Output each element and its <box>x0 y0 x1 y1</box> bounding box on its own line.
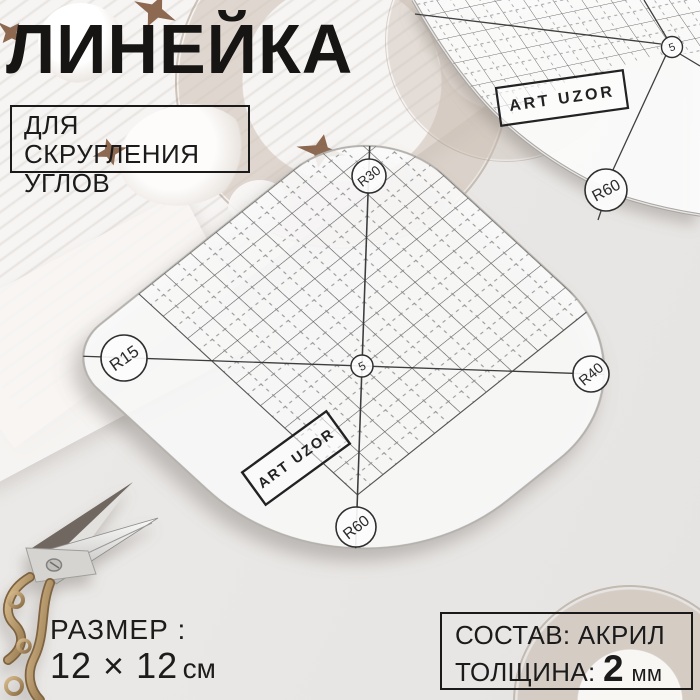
size-unit: см <box>183 653 216 684</box>
product-title: ЛИНЕЙКА <box>6 14 353 84</box>
thickness-label: ТОЛЩИНА: <box>455 657 596 687</box>
thickness-line: ТОЛЩИНА: 2 мм <box>455 652 691 690</box>
thickness-unit: мм <box>631 661 662 686</box>
subtitle-box: ДЛЯ СКРУГЛЕНИЯ УГЛОВ <box>10 105 250 173</box>
size-block: РАЗМЕР : 12 × 12 см <box>50 612 216 692</box>
specs-box: СОСТАВ: АКРИЛ ТОЛЩИНА: 2 мм <box>440 612 693 690</box>
scissors-handles <box>6 577 50 700</box>
subtitle-line1: ДЛЯ СКРУГЛЕНИЯ <box>24 111 248 169</box>
product-photo: ART UZOR R60 5 A <box>0 0 700 700</box>
subtitle-line2: УГЛОВ <box>24 169 248 198</box>
size-value: 12 × 12 <box>50 645 178 686</box>
thickness-value: 2 <box>603 648 624 689</box>
size-label: РАЗМЕР : <box>50 612 216 648</box>
composition-line: СОСТАВ: АКРИЛ <box>455 619 691 652</box>
